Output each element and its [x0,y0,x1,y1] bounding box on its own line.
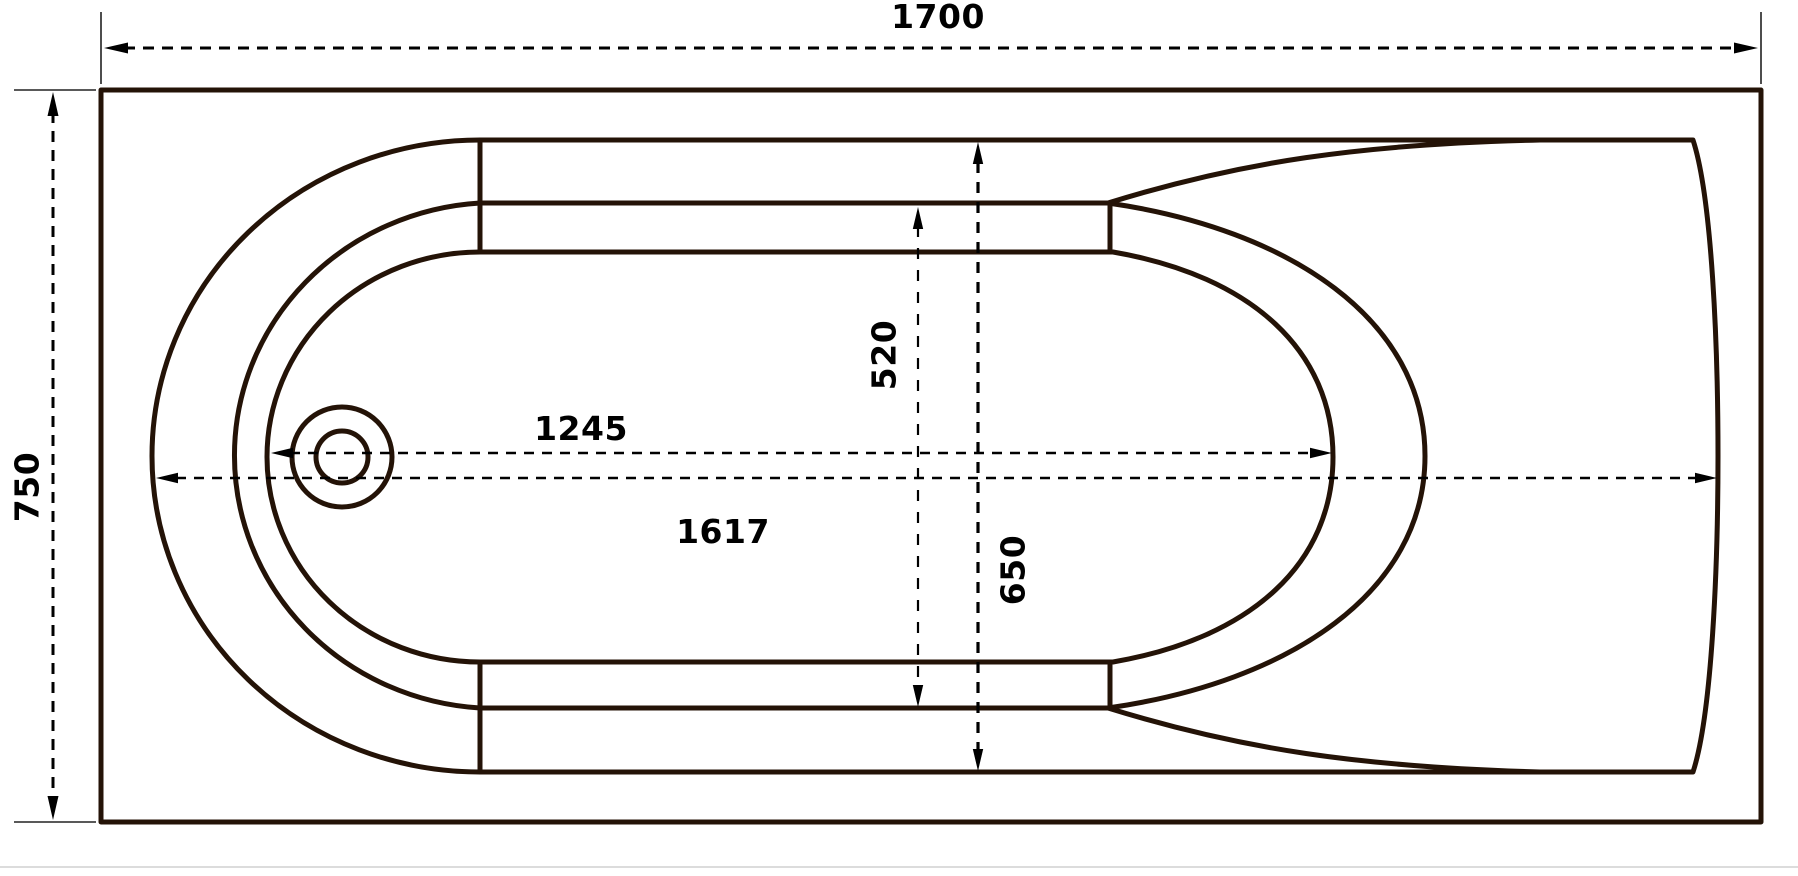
drain-inner-circle [316,431,368,483]
dim-inner-width: 650 [973,142,1033,771]
basin-floor-outline [267,252,1333,662]
dim-label-1617: 1617 [676,512,770,551]
arrowhead-left [271,448,293,458]
tub-outer-rect [101,90,1761,822]
arrowhead-right [1310,448,1332,458]
dim-label-750: 750 [8,452,47,522]
arrowhead-top [913,207,923,229]
dim-label-520: 520 [865,320,904,390]
arrowhead-bottom [913,685,923,707]
rim-outer-outline [152,140,1718,772]
drain-outer-circle [292,407,392,507]
arrowhead-right [1695,473,1717,483]
dim-overall-length: 1700 [101,0,1761,84]
backrest-top-curve [1108,140,1540,203]
bathtub-technical-drawing: 1700 750 1245 1617 [0,0,1798,876]
dim-overall-width: 750 [8,90,97,822]
dim-inner-length: 1617 [156,473,1717,551]
rim-inner-outline [234,203,1425,708]
dim-label-1245: 1245 [534,409,628,448]
arrowhead-left [104,43,128,54]
dim-label-1700: 1700 [891,0,985,36]
arrowhead-left [156,473,178,483]
drawing-canvas: 1700 750 1245 1617 [0,0,1798,876]
arrowhead-bottom [48,796,59,820]
backrest-bottom-curve [1108,708,1540,772]
arrowhead-bottom [973,749,983,771]
dim-floor-width: 520 [865,207,924,707]
dim-label-650: 650 [994,535,1033,605]
arrowhead-right [1734,43,1758,54]
tub-outlines [101,90,1761,822]
dim-floor-length: 1245 [271,409,1332,458]
arrowhead-top [973,142,983,164]
arrowhead-top [48,92,59,116]
